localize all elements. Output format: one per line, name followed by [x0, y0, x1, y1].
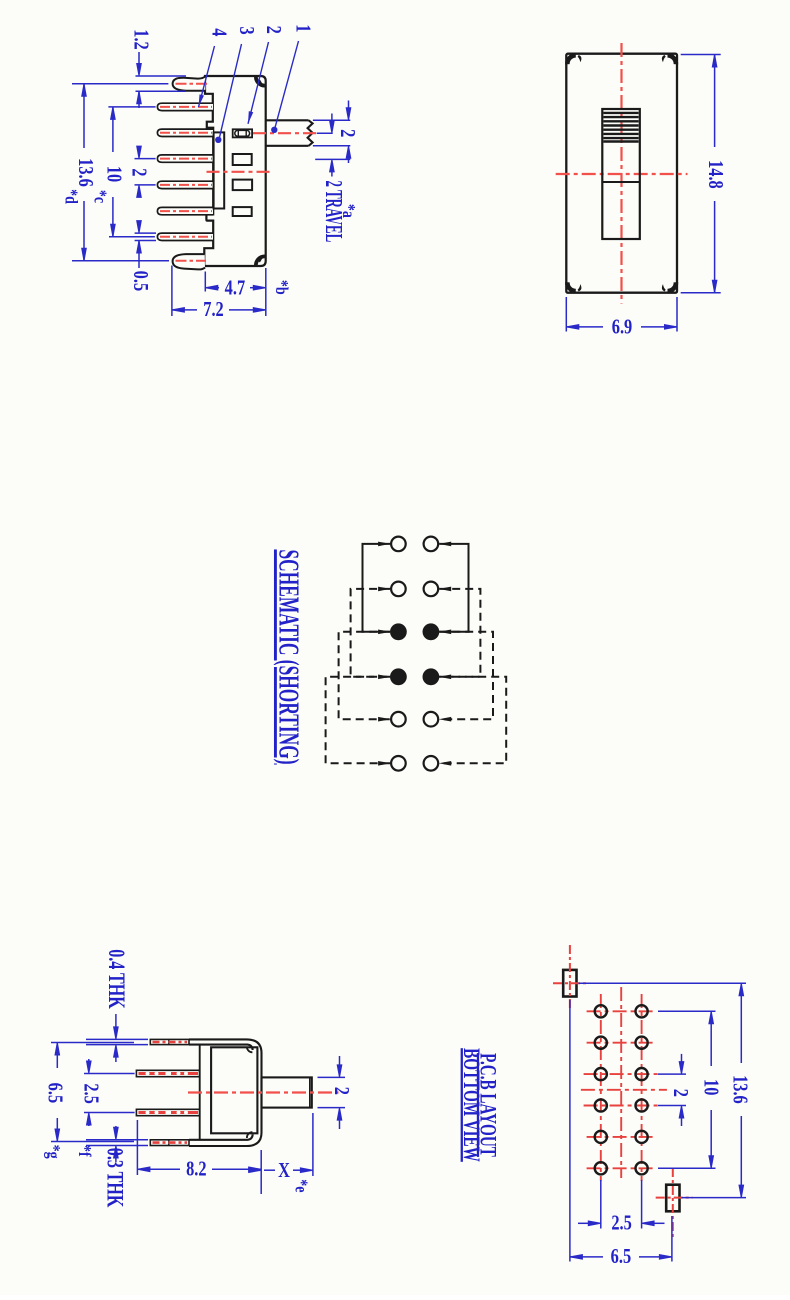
svg-text:2: 2: [127, 168, 150, 176]
svg-text:14.8: 14.8: [704, 160, 727, 189]
svg-text:13.6: 13.6: [728, 1075, 751, 1104]
svg-text:BOTTOM VIEW: BOTTOM VIEW: [458, 1048, 483, 1162]
svg-text:*g: *g: [43, 1145, 62, 1159]
svg-text:0.4 THK: 0.4 THK: [103, 949, 128, 1009]
svg-text:6.5: 6.5: [43, 1083, 66, 1103]
svg-text:*f: *f: [75, 1145, 94, 1157]
svg-text:2.5: 2.5: [611, 1212, 631, 1235]
svg-text:10: 10: [102, 166, 125, 182]
svg-text:0.5: 0.5: [128, 271, 151, 291]
svg-text:*b: *b: [272, 280, 291, 295]
svg-text:6.5: 6.5: [611, 1245, 631, 1268]
svg-text:13.6: 13.6: [74, 158, 97, 187]
svg-text:*d: *d: [61, 189, 80, 204]
svg-text:2: 2: [330, 1087, 353, 1095]
svg-text:4: 4: [207, 28, 230, 37]
svg-text:0.3 THK: 0.3 THK: [102, 1148, 127, 1208]
svg-text:2: 2: [336, 129, 359, 137]
svg-text:8.2: 8.2: [186, 1157, 206, 1180]
svg-text:SCHEMATIC (SHORTING): SCHEMATIC (SHORTING): [272, 549, 304, 764]
svg-text:2: 2: [262, 26, 285, 34]
svg-text:10: 10: [699, 1079, 722, 1095]
svg-text:6.9: 6.9: [612, 316, 632, 339]
svg-text:*e: *e: [291, 1179, 310, 1192]
svg-text:*c: *c: [90, 190, 109, 203]
svg-text:*a: *a: [339, 204, 358, 218]
svg-text:3: 3: [234, 27, 257, 35]
svg-text:7.2: 7.2: [203, 298, 223, 321]
svg-text:4.7: 4.7: [225, 276, 245, 299]
svg-text:1: 1: [291, 24, 314, 32]
svg-text:1.2: 1.2: [129, 29, 152, 49]
svg-text:X: X: [278, 1159, 290, 1182]
svg-text:2: 2: [669, 1089, 692, 1097]
svg-text:2.5: 2.5: [79, 1083, 102, 1103]
